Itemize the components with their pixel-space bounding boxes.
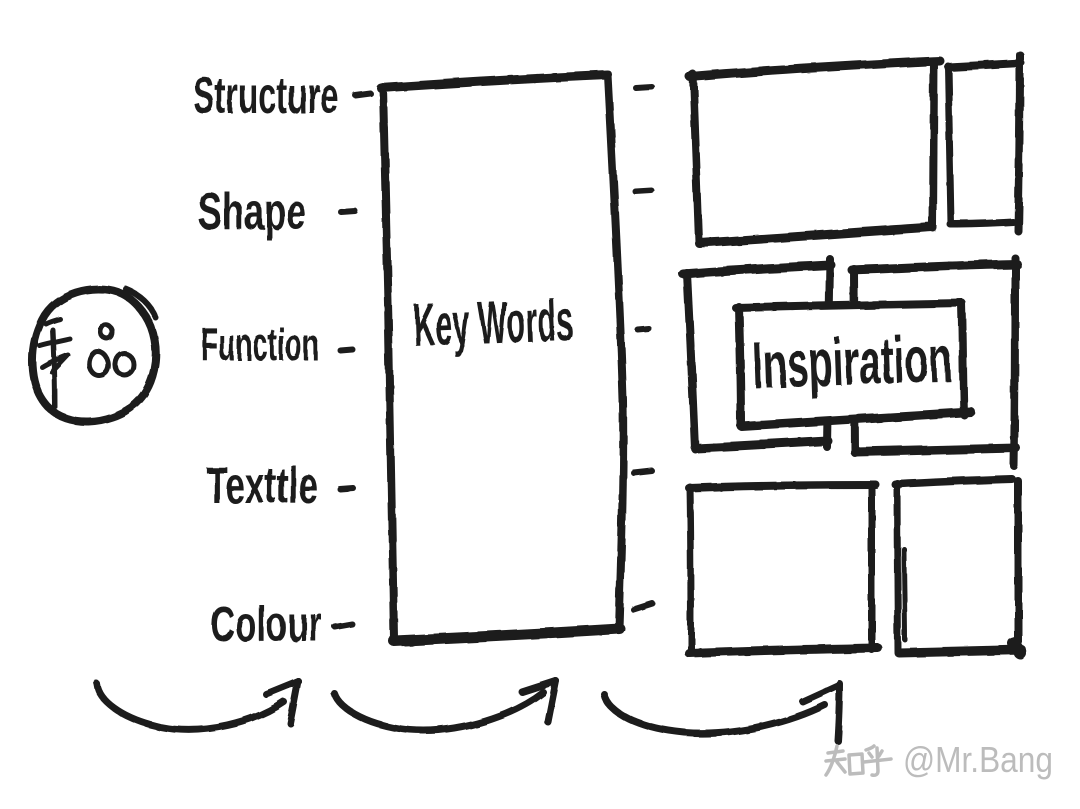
svg-text:Key Words: Key Words <box>412 286 574 359</box>
svg-text:Shape: Shape <box>198 183 306 241</box>
svg-text:Colour: Colour <box>210 596 322 652</box>
svg-text:@Mr.Bang: @Mr.Bang <box>903 739 1053 780</box>
svg-text:Structure: Structure <box>193 67 338 125</box>
svg-text:Inspiration: Inspiration <box>751 321 953 402</box>
svg-text:Function: Function <box>201 318 319 370</box>
svg-text:Texttle: Texttle <box>206 457 318 515</box>
